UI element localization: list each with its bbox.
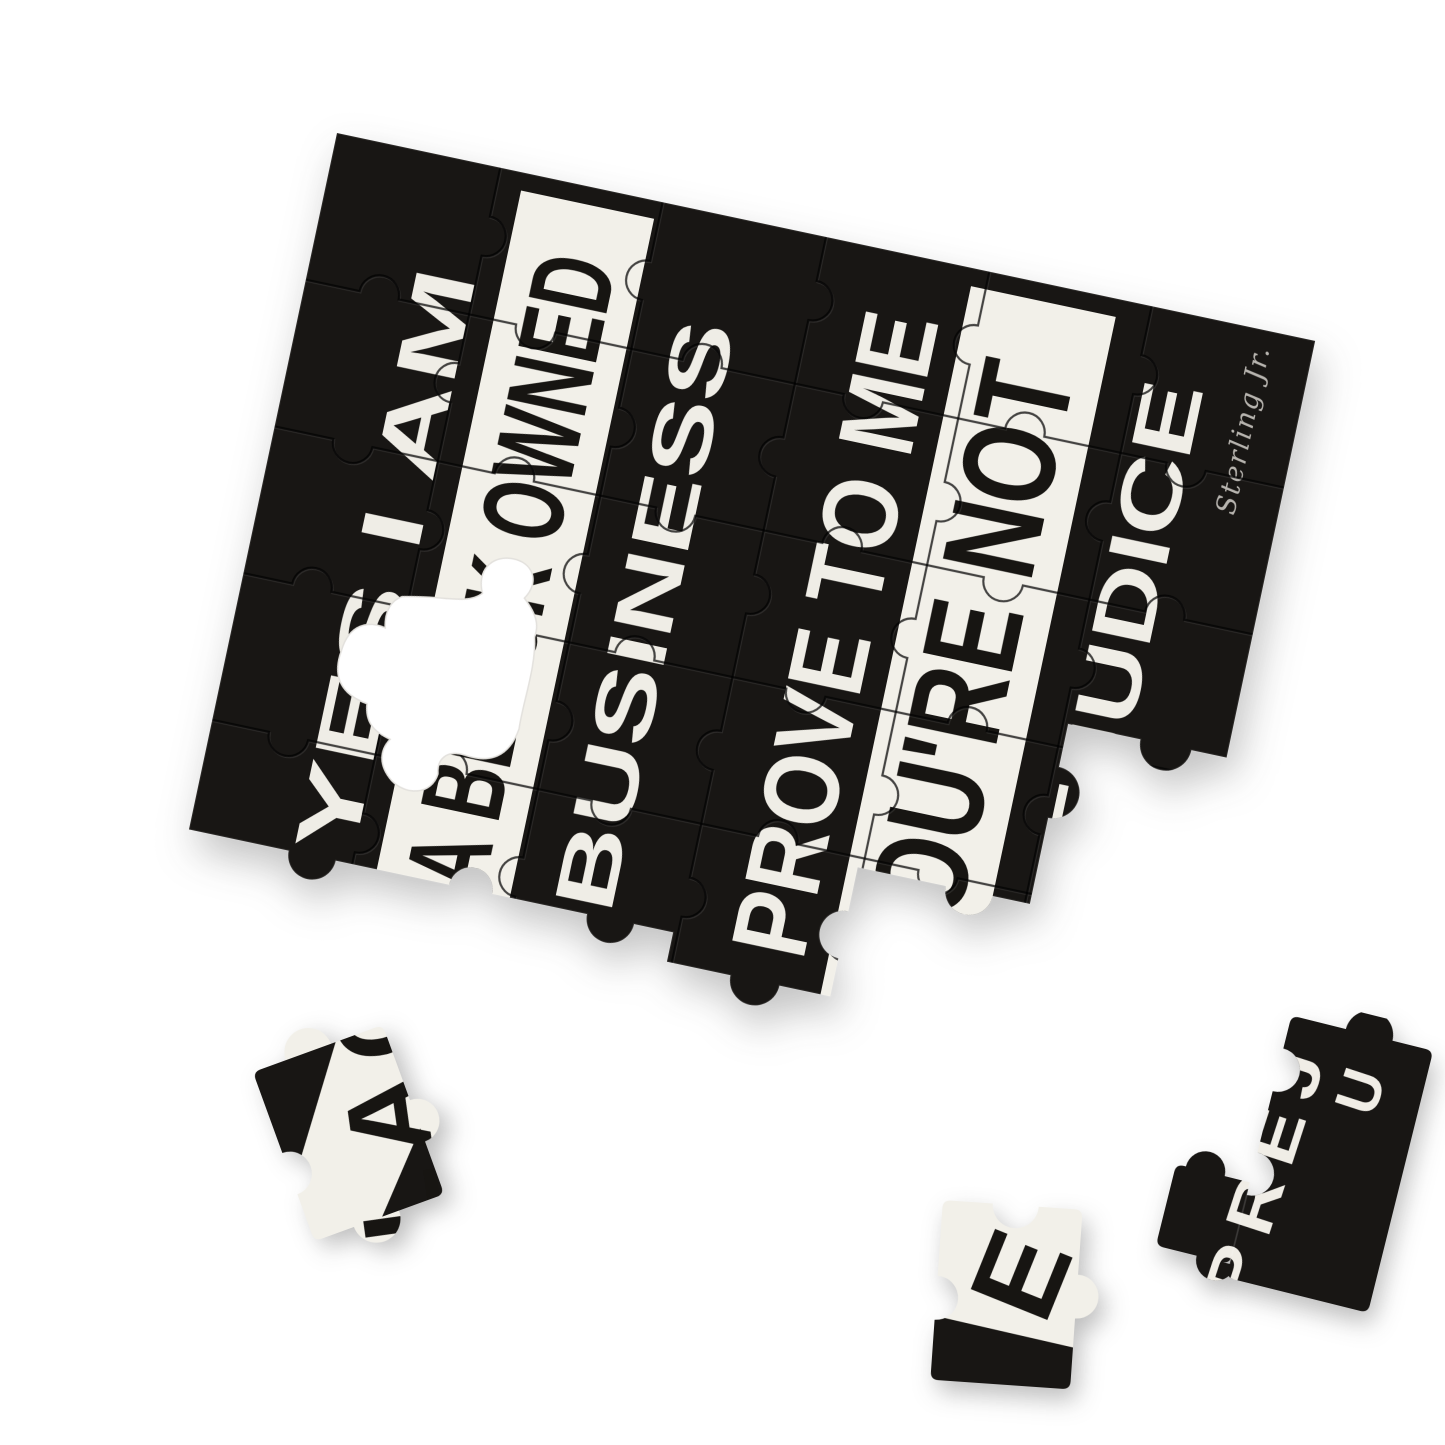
loose-piece-center-image: E [868,1166,1125,1432]
puzzle-board: YES I AM A BLACK OWNED BUSINESS PROVE TO… [170,133,1325,1130]
loose-piece-left: LAC [183,965,523,1313]
product-photo-stage: YES I AM A BLACK OWNED BUSINESS PROVE TO… [0,0,1445,1445]
loose-piece-left-image: LAC [183,965,522,1308]
puzzle-board-image: YES I AM A BLACK OWNED BUSINESS PROVE TO… [171,133,1325,1126]
loose-piece-center: E [867,1166,1124,1437]
